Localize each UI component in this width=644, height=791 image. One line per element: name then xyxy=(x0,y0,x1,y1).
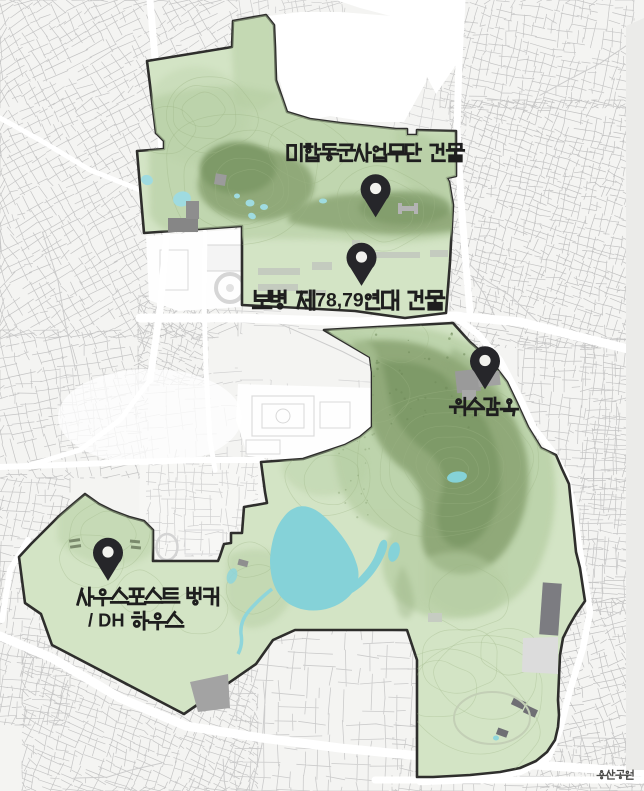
svg-text:/ DH: / DH xyxy=(88,610,125,631)
svg-text:78,79: 78,79 xyxy=(315,289,364,311)
